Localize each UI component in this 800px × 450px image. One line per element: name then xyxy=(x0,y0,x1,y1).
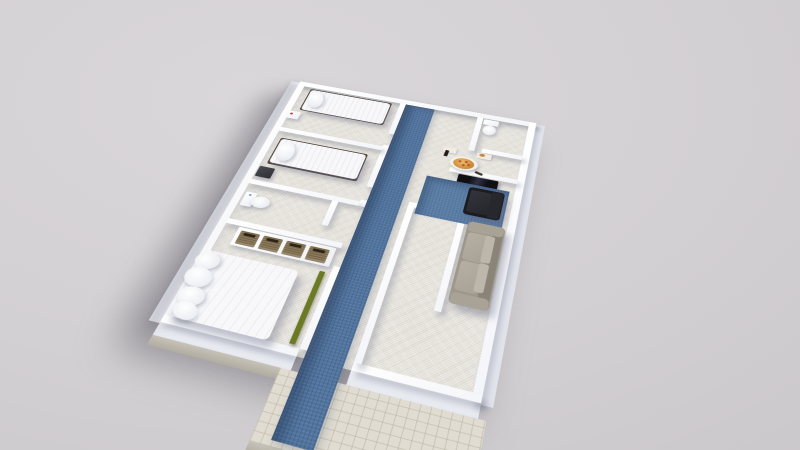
render-viewport[interactable] xyxy=(0,0,800,450)
floorplan-3d xyxy=(90,76,555,450)
